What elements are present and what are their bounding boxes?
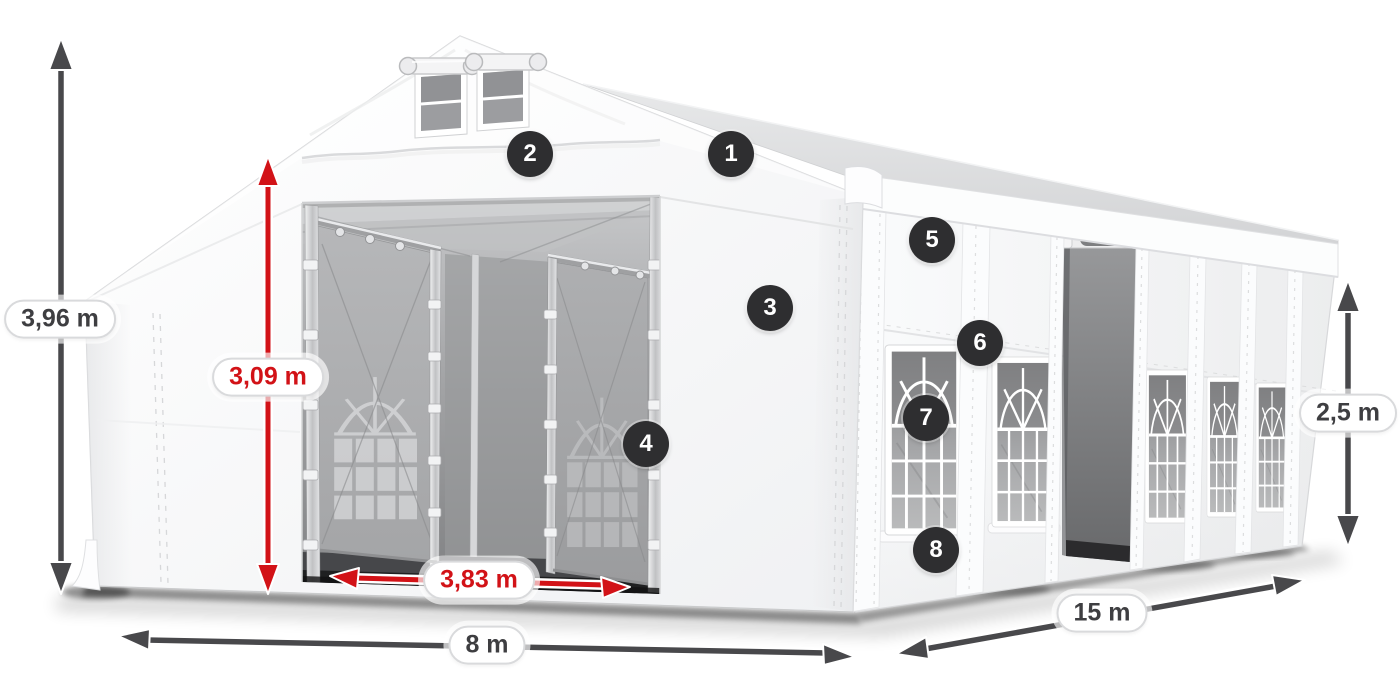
- front-right-door-open: [544, 255, 657, 584]
- callout-badge-1: 1: [708, 131, 754, 177]
- callout-badge-6: 6: [957, 320, 1003, 366]
- dimension-label-width: 8 m: [448, 626, 525, 665]
- tent-illustration: [0, 0, 1400, 700]
- eave-corner: [845, 167, 882, 208]
- dimension-label-length: 15 m: [1057, 594, 1148, 633]
- callout-badge-4: 4: [623, 421, 669, 467]
- tent-dimensions-diagram: 1 2 3 4 5 6 7 8 3,96 m 3,09 m 3,83 m 8 m…: [0, 0, 1400, 700]
- side-window: [1145, 370, 1190, 523]
- callout-badge-5: 5: [909, 217, 955, 263]
- front-opening-interior: [295, 190, 667, 600]
- front-left-door-open: [312, 218, 441, 566]
- dimension-label-door-width: 3,83 m: [423, 561, 535, 600]
- callout-badge-7: 7: [903, 395, 949, 441]
- callout-badge-8: 8: [913, 527, 959, 573]
- dimension-label-side-height: 2,5 m: [1299, 394, 1397, 433]
- callout-badge-2: 2: [507, 131, 553, 177]
- side-window: [1256, 383, 1288, 512]
- dimension-label-inner-height: 3,09 m: [212, 358, 324, 397]
- callout-badge-3: 3: [747, 285, 793, 331]
- dimension-label-total-height: 3,96 m: [4, 300, 116, 339]
- side-window: [992, 357, 1054, 527]
- side-door-open: [1056, 228, 1142, 562]
